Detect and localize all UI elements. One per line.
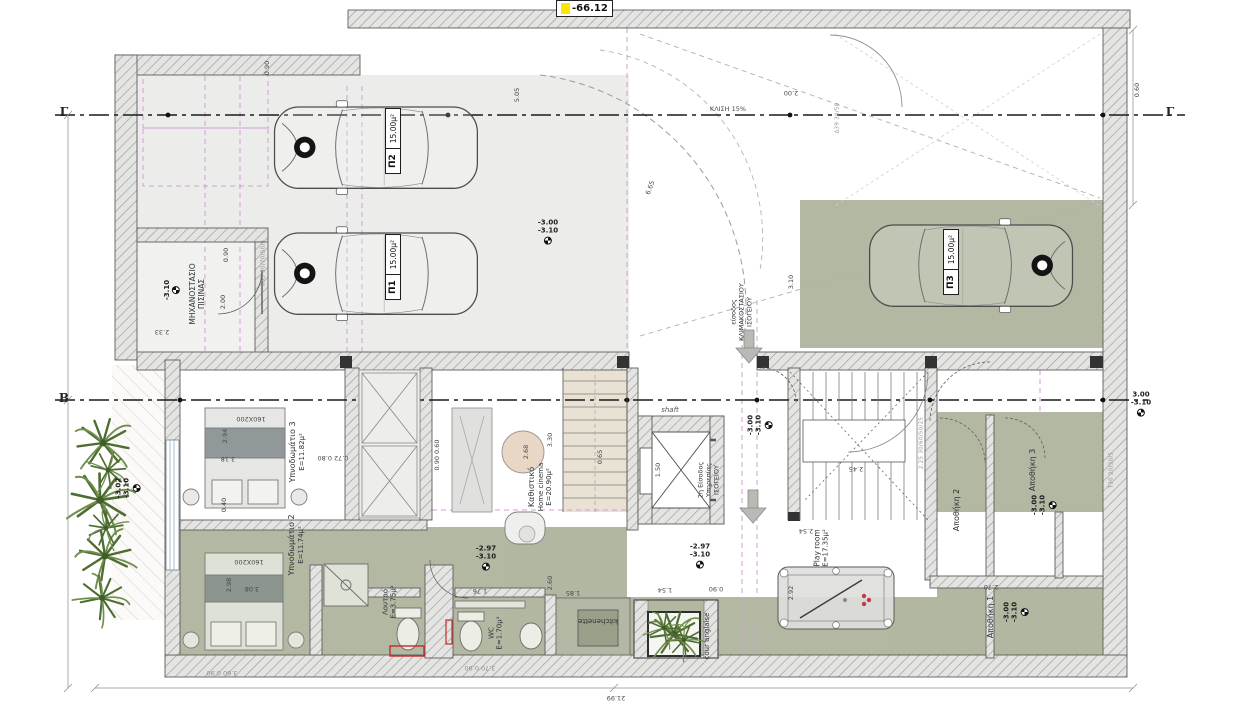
floor-plan: -66.12 Γ Γ Β Π2 15.00μ² Π1 15.00μ² Π3 15… [0,0,1242,715]
dim: 2.68 [523,445,531,459]
wardrobe [359,370,420,518]
level-walkway: -3.02-3.10 [116,478,141,498]
dim: 1.76 [473,586,487,594]
ramp-slope-label: ΚΛΙΣΗ 15% [710,106,746,114]
dim: 0.90 [709,584,723,592]
dim: 3.18 [221,454,235,462]
dim: 160X200 [236,414,265,422]
main-staircase [790,372,928,520]
parking-area: 15.00μ² [386,235,400,275]
room-label-kitchenette: kitchenette [578,617,618,625]
level-mech-room: -3.10 [164,280,180,300]
parking-code: Π3 [944,270,958,294]
kitchenette-counter [556,598,630,655]
room-label-bathroom: ΛουτρόΕ=3.75μ² [382,585,399,618]
level-marker-icon [1020,608,1028,616]
car-p2 [275,101,478,195]
parking-area: 15.00μ² [944,230,958,270]
level-garage: -3.00-3.10 [538,220,558,245]
level-marker-icon [544,236,552,244]
window [166,440,179,570]
column-tag: 2.25 30/60/50/25 [919,417,926,469]
level-marker-icon [482,562,490,570]
dim: 3.30 [547,433,555,447]
level-court-zone: -2.97-3.10 [690,544,710,569]
dim: 0.65 [597,450,605,464]
parking-plate-p2: Π2 15.00μ² [385,108,401,174]
level-storage1: -3.00-3.10 [1004,602,1029,622]
level-entry2: -3.00-3.10 [748,415,773,435]
elevation-value: -66.12 [572,3,608,14]
dim: 1.50 [655,463,663,477]
dim: 0.60 [1134,83,1142,97]
level-bath-zone: -2.97-3.10 [476,546,496,571]
dim: 3.60 0.90 [206,668,237,676]
dim: 3.08 [245,584,259,592]
washbasin [520,623,542,649]
car-p3 [870,219,1073,313]
room-label-living: ΚαθιστικόHome cinemaΕ=20.90μ² [527,463,553,512]
dim: 2.54 [799,526,813,534]
highlight-icon [561,3,570,14]
room-label-bedroom2: Υπνοδωμάτιο 2Ε=11.74μ² [287,514,305,575]
wall-tag: Τ30 20/30/5 [1109,452,1116,489]
elevation-marker-box: -66.12 [556,0,613,17]
shower [324,564,368,606]
car-p1 [275,227,478,321]
level-section-b-end: 3.00-3.10 [1131,392,1151,417]
dim: 2.33 [155,327,169,335]
room-label-storage1: Αποθήκη 1 [986,596,996,639]
shaft-label: shaft [661,406,679,414]
parking-plate-p1: Π1 15.00μ² [385,234,401,300]
toilet-wc [458,612,484,651]
dim: 5.05 [514,88,522,102]
entrance-arrow-2 [740,490,766,523]
dim: 21.99 [607,693,626,701]
tv-cabinet [452,408,492,512]
dim: 2.70 [984,582,998,590]
dim: 0.90 [223,248,231,262]
level-marker-icon [764,421,772,429]
section-mark-gamma-left: Γ [60,105,69,119]
dim: 2.98 [226,578,234,592]
dim: 2.45 [849,464,863,472]
section-mark-gamma-right: Γ [1166,105,1175,119]
dim: 0.72 0.80 [317,453,348,461]
dim: 2.00 [220,295,228,309]
parking-code: Π1 [386,275,400,299]
parking-area: 15.00μ² [386,109,400,149]
dim: 160X200 [234,557,263,565]
parking-code: Π2 [386,149,400,173]
room-label-cour-anglaise: cour anglaise [703,613,711,660]
wc-shelf [455,601,525,608]
dim: 3.70 0.90 [464,663,495,671]
column-tag: Δ39 30/50 [835,102,842,133]
dim: 0.40 [221,498,229,512]
room-label-storage3: Αποθήκη 3 [1028,449,1038,492]
dim: 0.90 [264,61,272,75]
room-label-storage2: Αποθήκη 2 [952,489,962,532]
dim: 2.60 [547,576,555,590]
floor-plan-drawing [0,0,1242,715]
parking-plate-p3: Π3 15.00μ² [943,229,959,295]
sofa [505,512,545,544]
dim: 2.92 [788,586,796,600]
room-label-playroom: Play roomΕ=17.35μ² [812,529,829,567]
column-tag: Κ65 30/70/50/5 [261,240,268,287]
room-label-wc: WCΕ=1.70μ² [488,616,505,649]
dim: 2.00 [784,88,798,96]
room-label-pool-machine-room: ΜΗΧΑΝΟΣΤΑΣΙΟΠΙΣΙΝΑΣ [188,263,206,324]
dim: 0.90 0.60 [434,439,442,470]
dim: 3.10 [788,275,796,289]
level-marker-icon [132,484,140,492]
level-marker-icon [696,560,704,568]
dim: 2.94 [222,429,230,443]
level-marker-icon [1137,408,1145,416]
level-marker-icon [172,286,180,294]
dim: 1.54 [658,585,672,593]
level-marker-icon [1048,501,1056,509]
section-mark-beta-left: Β [59,391,69,405]
entrance2-label: 2η ΕίσοδοςΥπηρεσίαςΙΣΟΓΕΙΟΥ [697,462,720,499]
toilet-bath [395,608,421,650]
level-storage3: -3.00-3.10 [1032,495,1057,515]
room-label-bedroom3: Υπνοδωμάτιο 3Ε=11.82μ² [288,421,306,482]
entrance1-label: είσοδοςΚΛΙΜΑΚΟΣΤΑΣΙΟΥΙΣΟΓΕΙΟΥ [730,283,753,341]
dim: 1.85 [566,588,580,596]
